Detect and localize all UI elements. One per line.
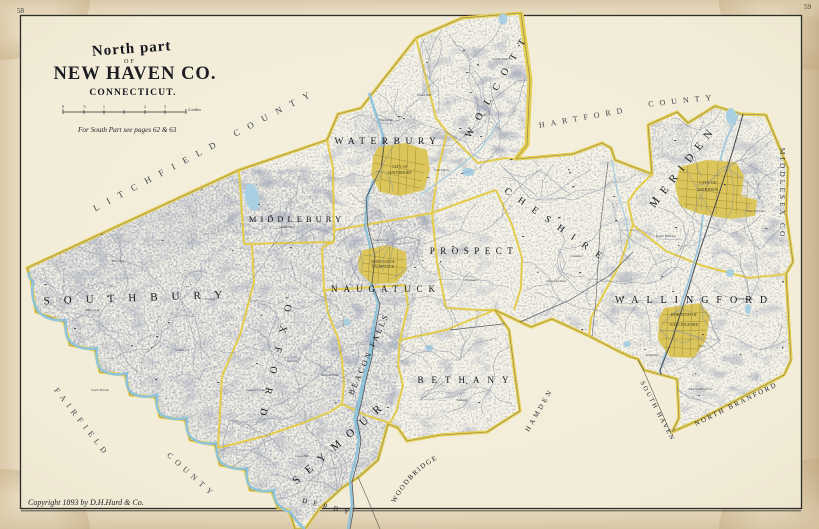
svg-text:CITY OF: CITY OF xyxy=(699,180,717,185)
svg-text:West Cheshire: West Cheshire xyxy=(546,279,566,283)
svg-text:2: 2 xyxy=(144,105,146,109)
svg-text:Copyright 1893 by D.H.Hurd & C: Copyright 1893 by D.H.Hurd & Co. xyxy=(28,498,144,507)
svg-text:Waterville: Waterville xyxy=(379,118,394,122)
svg-text:WALLINGFORD: WALLINGFORD xyxy=(670,322,699,327)
svg-text:East Wallingford: East Wallingford xyxy=(689,387,712,391)
svg-text:NAUGATUCK: NAUGATUCK xyxy=(372,265,395,269)
svg-text:WALLINGFORD: WALLINGFORD xyxy=(615,295,775,306)
svg-text:Tracy: Tracy xyxy=(698,344,706,348)
svg-text:Middlebury: Middlebury xyxy=(279,225,295,229)
svg-text:Oxford: Oxford xyxy=(287,359,297,363)
svg-text:CITY OF: CITY OF xyxy=(392,164,408,169)
svg-text:For South Part see pages 62 &: For South Part see pages 62 & 63 xyxy=(77,126,177,134)
svg-text:NEW HAVEN CO.: NEW HAVEN CO. xyxy=(54,64,217,84)
svg-text:CONNECTICUT.: CONNECTICUT. xyxy=(89,88,176,98)
svg-text:BOROUGH OF: BOROUGH OF xyxy=(371,260,394,264)
svg-text:Yalesville: Yalesville xyxy=(645,353,659,357)
svg-text:MIDDLEBURY: MIDDLEBURY xyxy=(249,214,345,224)
svg-text:BETHANY: BETHANY xyxy=(418,375,517,385)
svg-text:Purchase: Purchase xyxy=(112,259,125,263)
svg-text:0: 0 xyxy=(62,105,64,109)
svg-text:1: 1 xyxy=(103,105,105,109)
svg-text:East Meriden: East Meriden xyxy=(747,209,765,213)
svg-text:MIDDLESEX CO.: MIDDLESEX CO. xyxy=(778,148,787,245)
svg-text:Great Hill: Great Hill xyxy=(295,454,309,458)
svg-text:WATERBURY: WATERBURY xyxy=(334,137,441,147)
svg-text:Southford: Southford xyxy=(175,348,189,352)
svg-text:Prospect: Prospect xyxy=(465,278,477,282)
svg-text:PROSPECT: PROSPECT xyxy=(430,246,519,256)
svg-text:South Meriden: South Meriden xyxy=(656,234,677,238)
svg-text:2 miles: 2 miles xyxy=(188,107,201,112)
svg-text:East Farms: East Farms xyxy=(434,168,450,172)
svg-text:½: ½ xyxy=(83,105,86,109)
svg-text:58: 58 xyxy=(17,7,25,15)
svg-text:White Oak: White Oak xyxy=(85,308,100,312)
svg-text:Cheshire: Cheshire xyxy=(571,254,584,258)
svg-text:NAUGATUCK: NAUGATUCK xyxy=(331,284,441,294)
svg-text:South Britain: South Britain xyxy=(91,388,109,392)
svg-text:Bethany: Bethany xyxy=(456,398,468,402)
svg-text:BOROUGH OF: BOROUGH OF xyxy=(671,312,698,317)
svg-text:WATERBURY: WATERBURY xyxy=(388,170,412,175)
svg-text:Beacon Falls: Beacon Falls xyxy=(321,373,339,377)
svg-text:MERIDEN: MERIDEN xyxy=(698,187,719,192)
svg-text:Bucks Hill: Bucks Hill xyxy=(417,93,432,97)
svg-text:3: 3 xyxy=(164,105,166,109)
svg-text:Union City: Union City xyxy=(373,238,388,242)
svg-text:59: 59 xyxy=(804,3,812,11)
